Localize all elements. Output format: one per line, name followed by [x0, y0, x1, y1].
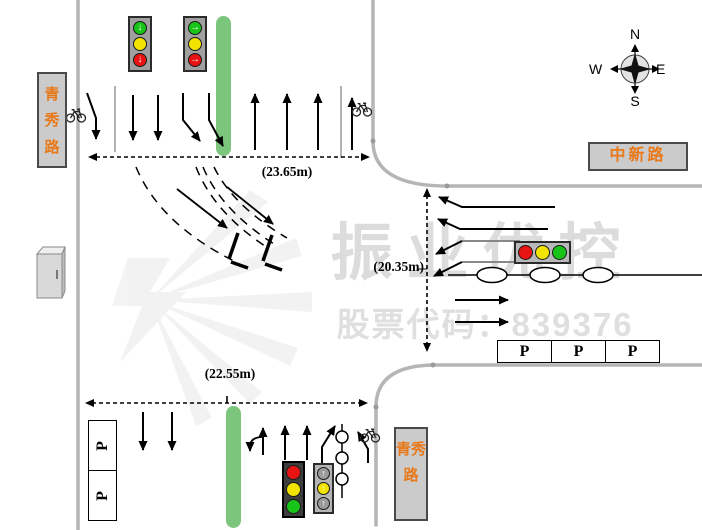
parking-cell: P — [498, 341, 551, 362]
dimension-label-south: (22.55m) — [172, 366, 288, 382]
bicycle-icon — [67, 109, 86, 122]
parking-letter: P — [94, 491, 112, 501]
compass-east-label: E — [656, 61, 665, 77]
flexible-post-line — [336, 424, 348, 498]
traffic-light-east — [514, 241, 571, 264]
red-lamp — [286, 465, 301, 480]
compass-south-label: S — [626, 93, 644, 109]
yellow-lamp — [535, 245, 550, 260]
parking-column-south: P P — [88, 420, 117, 521]
intersection-diagram: 振业优控 股票代码：839376 — [0, 0, 702, 530]
red-down-arrow-lamp: ↓ — [133, 53, 147, 67]
parking-letter: P — [94, 441, 112, 451]
yellow-lamp — [133, 37, 147, 51]
yellow-lamp — [188, 37, 202, 51]
green-lamp — [552, 245, 567, 260]
dimension-label-east: (20.35m) — [352, 259, 424, 275]
parking-row-east: P P P — [497, 340, 660, 363]
green-lamp — [286, 499, 301, 514]
road-label-south-qingxiu: 青秀路 — [394, 427, 428, 521]
east-road-center-line-ellipses — [448, 268, 702, 283]
gray-up-arrow-lamp: ↑ — [317, 467, 330, 480]
compass-north-label: N — [626, 26, 644, 42]
parking-cell: P — [89, 470, 116, 520]
watermark-logo-fan — [112, 190, 312, 426]
green-down-arrow-lamp: ↓ — [133, 21, 147, 35]
dimension-label-north: (23.65m) — [232, 164, 342, 180]
gray-up-arrow-lamp: ↑ — [317, 497, 330, 510]
compass-rose — [610, 44, 660, 94]
red-right-arrow-lamp: → — [188, 53, 202, 67]
road-label-north-qingxiu: 青秀路 — [37, 72, 67, 168]
red-lamp — [518, 245, 533, 260]
parking-cell: P — [89, 421, 116, 470]
south-road-lane-arrows — [143, 412, 368, 470]
road-label-east-zhongxin: 中新路 — [588, 142, 688, 171]
signal-cabinet — [37, 247, 65, 298]
compass-west-label: W — [589, 61, 602, 77]
parking-cell: P — [551, 341, 605, 362]
green-right-arrow-lamp: → — [188, 21, 202, 35]
parking-cell: P — [605, 341, 659, 362]
bicycle-icon — [353, 103, 372, 116]
traffic-light-south-right: ↑ ↑ ↑ — [313, 463, 334, 514]
yellow-lamp — [286, 482, 301, 497]
traffic-light-north-left: ↓ ↓ — [128, 16, 152, 72]
traffic-light-north-right: → → — [183, 16, 207, 72]
yellow-up-arrow-lamp: ↑ — [317, 482, 330, 495]
traffic-light-south-left — [282, 461, 305, 518]
